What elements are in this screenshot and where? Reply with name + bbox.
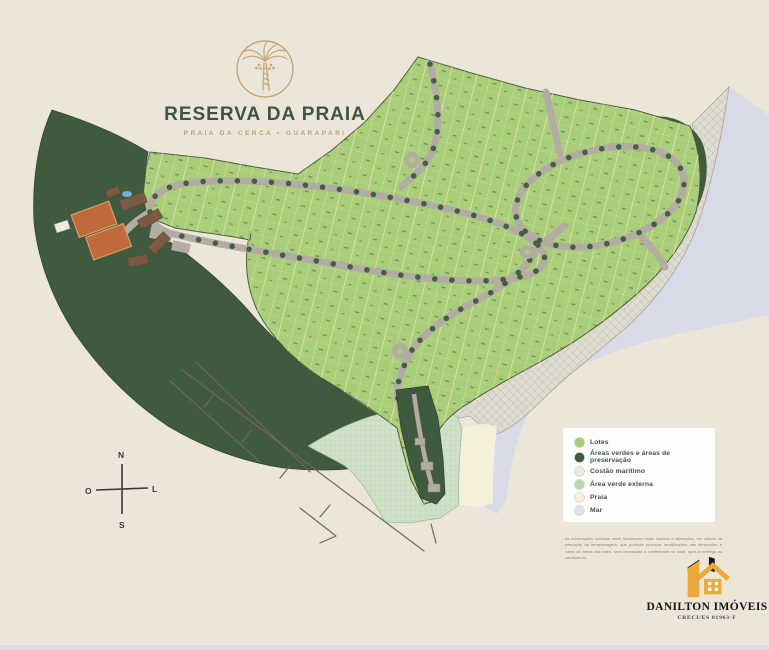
beach-region [459,424,497,507]
house-icon [678,554,736,600]
legend-swatch-costao-icon [574,466,585,477]
swimming-pool [122,191,132,197]
legend-item-areas-verdes: Áreas verdes e áreas de preservação [574,450,709,464]
compass-north: N [118,450,124,460]
legend-swatch-lotes-icon [574,437,585,448]
legend-swatch-verde-externa-icon [574,479,585,490]
legend-item-mar: Mar [574,505,709,516]
bottom-bar [0,645,769,650]
map-legend: Lotes Áreas verdes e áreas de preservaçã… [563,428,715,522]
compass-east: L [152,484,157,494]
legend-item-area-verde-externa: Área verde externa [574,479,709,490]
legend-swatch-mar-icon [574,505,585,516]
development-title: RESERVA DA PRAIA [145,104,385,126]
compass-south: S [119,520,125,530]
legend-item-lotes: Lotes [574,437,709,448]
realtor-logo: DANILTON IMÓVEIS CRECI/ES 01963-F [645,554,769,621]
compass-west: O [85,486,92,496]
legend-item-praia: Praia [574,492,709,503]
development-logo: RESERVA DA PRAIA PRAIA DA CERCA • GUARAP… [145,38,385,137]
legend-swatch-areas-verdes-icon [574,452,585,463]
legend-swatch-praia-icon [574,492,585,503]
realtor-name: DANILTON IMÓVEIS [645,601,769,613]
realtor-registration: CRECI/ES 01963-F [645,615,769,621]
palm-tree-icon [234,38,296,100]
masterplan-page: N S O L RESERVA DA PRAIA [0,0,769,650]
legend-item-costao-maritimo: Costão marítimo [574,466,709,477]
development-subtitle: PRAIA DA CERCA • GUARAPARI [145,130,385,137]
